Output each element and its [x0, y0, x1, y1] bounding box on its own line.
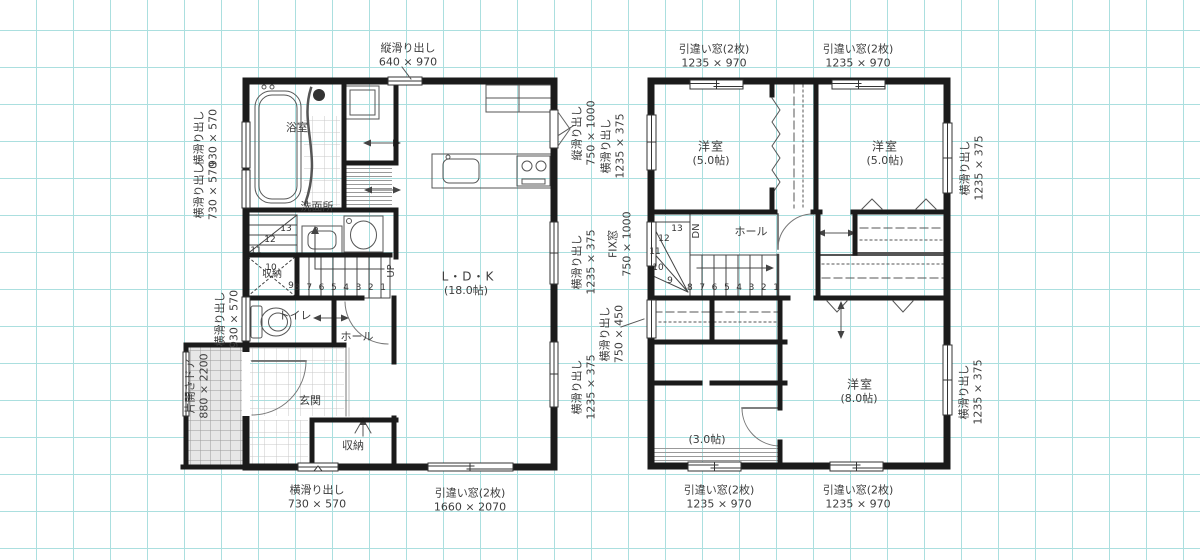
sliding-door-arrows-f2	[817, 230, 856, 340]
room-label-ldk: L・D・K	[442, 270, 495, 285]
window-f1-left-toilet	[242, 297, 250, 341]
room-label-ldk-size: (18.0帖)	[444, 284, 488, 298]
window-label-f2-east-top: 横滑り出し1235 × 375	[958, 135, 986, 200]
stair-winder-number: 10	[265, 263, 276, 273]
floorplan-canvas: 縦滑り出し640 × 970 横滑り出し930 × 570 横滑り出し730 ×…	[0, 0, 1200, 560]
window-f1-right-low	[550, 342, 558, 407]
kitchen-island	[432, 154, 552, 188]
window-label-f1-left-lower: 横滑り出し730 × 570	[192, 162, 220, 220]
stair-run-numbers-f2: 87 65 43 21	[687, 283, 779, 293]
refrigerator	[346, 86, 379, 119]
storage-door-arc	[742, 408, 780, 446]
room-label-entrance: 玄関	[299, 394, 321, 408]
window-label-f1-right-mid: 横滑り出し1235 × 375	[570, 229, 598, 294]
stair-winder-number: 10	[652, 263, 663, 273]
window-f1-left-upper	[242, 122, 250, 168]
room-label-washroom: 洗面所	[301, 200, 334, 214]
window-label-f2-east-low: 横滑り出し1235 × 375	[957, 359, 985, 424]
window-label-f2-top-left: 引違い窓(2枚)1235 × 970	[679, 42, 750, 70]
room-label-bed3: 洋室	[847, 378, 873, 393]
stair-winder-number: 13	[280, 224, 291, 234]
window-f1-right-mid	[550, 222, 558, 284]
stairs-up-label: UP	[386, 264, 399, 277]
kitchen-counter	[486, 85, 552, 112]
window-label-f1-right-low: 横滑り出し1235 × 375	[570, 354, 598, 419]
window-f1-top	[388, 77, 422, 85]
room-label-entrance-closet: 収納	[342, 439, 364, 453]
stair-winder-number: 11	[250, 246, 261, 256]
floor2-fixtures	[651, 85, 947, 446]
stair-winder-number: 11	[649, 247, 660, 257]
washing-machine	[344, 216, 383, 252]
shower-head-icon	[313, 89, 325, 101]
stair-winder-number: 13	[671, 224, 682, 234]
room-label-bath: 浴室	[286, 121, 308, 135]
room-label-bed2-size: (5.0帖)	[866, 154, 903, 168]
floorplan-linework	[0, 0, 1200, 560]
door-label-f1-entry: 片開きドア880 × 2200	[183, 353, 211, 418]
window-f2-top-right	[832, 80, 885, 89]
room-label-bed1-size: (5.0帖)	[692, 154, 729, 168]
room-label-f1-hall: ホール	[341, 330, 374, 344]
window-label-f1-top: 縦滑り出し640 × 970	[379, 41, 437, 69]
vanity-sink	[302, 226, 342, 253]
stair-winder-number: 12	[264, 235, 275, 245]
window-f1-bottom-wide	[428, 463, 513, 471]
window-label-f1-left-toilet: 横滑り出し930 × 570	[213, 290, 241, 348]
window-label-f2-top-right: 引違い窓(2枚)1235 × 970	[823, 42, 894, 70]
window-f2-west-mid	[647, 222, 656, 266]
stair-winder-number: 9	[288, 281, 294, 291]
window-f2-west-low	[647, 300, 656, 338]
window-label-f2-west-top: 横滑り出し1235 × 375	[599, 113, 627, 178]
window-f2-east-top	[943, 123, 952, 193]
hall-door-arc	[778, 214, 813, 249]
floor2-walls	[651, 81, 947, 466]
window-label-f2-bottom-left: 引違い窓(2枚)1235 × 970	[684, 483, 755, 511]
window-f2-east-low	[943, 345, 952, 415]
window-f1-bottom-small	[298, 463, 338, 471]
room-label-bed3-size: (8.0帖)	[840, 392, 877, 406]
window-label-f1-left-upper: 横滑り出し930 × 570	[192, 109, 220, 167]
window-f1-right-top	[550, 110, 570, 148]
window-label-f2-west-low: 横滑り出し750 × 450	[598, 305, 626, 363]
room-label-bed1: 洋室	[698, 140, 724, 155]
window-label-f2-west-mid: FIX窓750 × 1000	[606, 211, 634, 276]
window-label-f1-right-top: 縦滑り出し750 × 1000	[570, 100, 598, 165]
stair-winder-number: 9	[667, 276, 673, 286]
room-label-bed2: 洋室	[872, 140, 898, 155]
window-f2-bottom-left	[688, 462, 741, 471]
window-label-f1-bottom-wide: 引違い窓(2枚)1660 × 2070	[434, 486, 506, 514]
room-label-f2-hall: ホール	[735, 225, 768, 239]
window-f2-west-top	[647, 115, 656, 170]
room-label-toilet: トイレ	[279, 309, 312, 323]
folding-door-mark	[772, 98, 780, 194]
window-f2-bottom-right	[830, 462, 883, 471]
bathtub	[255, 91, 301, 203]
stair-winder-number: 12	[658, 234, 669, 244]
stair-run-numbers-f1: 87 65 43 21	[294, 283, 386, 293]
window-f1-left-lower	[242, 170, 250, 208]
window-f2-top-left	[690, 80, 743, 89]
kitchen-sink	[443, 159, 479, 183]
stairs-dn-label: DN	[691, 223, 704, 238]
window-label-f1-bottom-small: 横滑り出し730 × 570	[288, 483, 346, 511]
window-label-f2-bottom-right: 引違い窓(2枚)1235 × 970	[823, 483, 894, 511]
room-label-storage-3jo: (3.0帖)	[688, 433, 725, 447]
